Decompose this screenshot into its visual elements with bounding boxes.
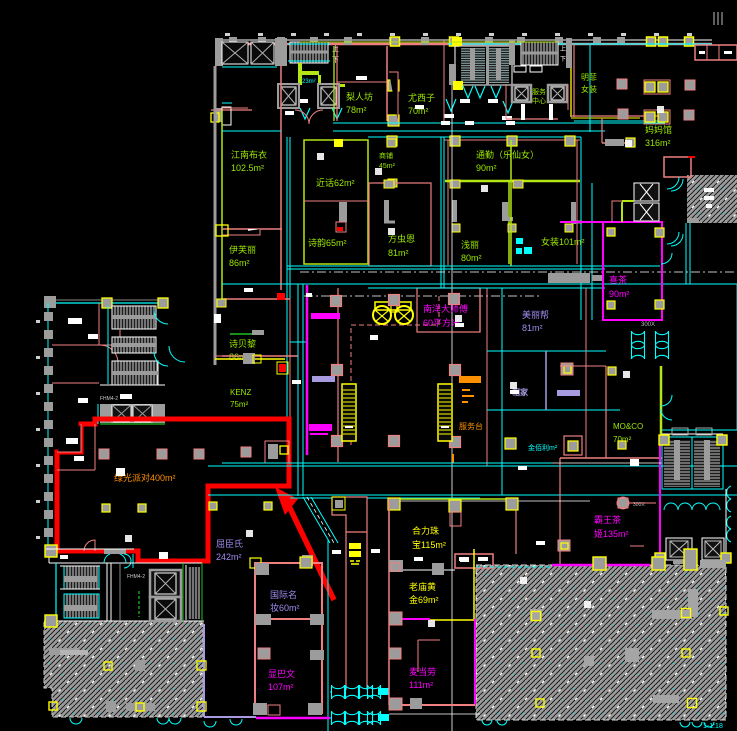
svg-text:合力珠: 合力珠 <box>412 525 439 536</box>
svg-text:国际名: 国际名 <box>270 589 297 600</box>
svg-text:78m²: 78m² <box>346 105 367 115</box>
svg-text:下: 下 <box>560 56 566 63</box>
svg-text:麦当劳: 麦当劳 <box>409 666 436 677</box>
svg-text:通勤（乐仙女）: 通勤（乐仙女） <box>476 149 539 160</box>
svg-text:金69m²: 金69m² <box>409 594 439 605</box>
svg-text:1-1:18: 1-1:18 <box>703 723 723 730</box>
svg-text:FHM4-2: FHM4-2 <box>100 396 118 402</box>
svg-text:MO&CO: MO&CO <box>613 422 643 431</box>
svg-text:90m²: 90m² <box>609 289 630 299</box>
svg-text:300X: 300X <box>641 322 655 328</box>
svg-text:23m²: 23m² <box>302 79 316 85</box>
svg-text:浅丽: 浅丽 <box>461 239 479 250</box>
svg-text:316m²: 316m² <box>645 138 671 148</box>
svg-text:喜茶: 喜茶 <box>609 274 627 285</box>
svg-text:80m²: 80m² <box>461 253 482 263</box>
svg-text:诗韵65m²: 诗韵65m² <box>308 237 347 248</box>
svg-text:86m²: 86m² <box>229 258 250 268</box>
svg-text:妆60m²: 妆60m² <box>270 602 300 613</box>
svg-text:金佰利m²: 金佰利m² <box>528 443 558 452</box>
svg-text:明菲: 明菲 <box>581 72 597 82</box>
svg-text:服务: 服务 <box>532 87 546 96</box>
svg-text:南洋大师傅: 南洋大师傅 <box>423 303 468 314</box>
svg-text:近话62m²: 近话62m² <box>316 177 355 188</box>
svg-text:服务台: 服务台 <box>459 421 483 431</box>
svg-text:75m²: 75m² <box>230 400 249 409</box>
svg-text:美丽帮: 美丽帮 <box>522 309 549 320</box>
svg-text:上: 上 <box>332 44 339 53</box>
svg-text:中心: 中心 <box>532 96 546 105</box>
svg-text:60平方米: 60平方米 <box>423 317 460 328</box>
svg-text:81m²: 81m² <box>522 323 543 333</box>
svg-text:江南布衣: 江南布衣 <box>231 149 267 160</box>
svg-text:242m²: 242m² <box>216 552 242 562</box>
svg-text:姬135m²: 姬135m² <box>594 528 629 539</box>
svg-text:显巴文: 显巴文 <box>268 668 295 679</box>
svg-text:诗贝黎: 诗贝黎 <box>229 338 256 349</box>
svg-text:90m²: 90m² <box>476 163 497 173</box>
svg-text:女装101m²: 女装101m² <box>541 236 585 247</box>
svg-text:女装: 女装 <box>581 84 597 94</box>
svg-text:妈妈馆: 妈妈馆 <box>645 124 672 135</box>
svg-text:102.5m²: 102.5m² <box>231 163 264 173</box>
svg-text:FHM4-2: FHM4-2 <box>127 574 145 580</box>
svg-text:107m²: 107m² <box>268 682 294 692</box>
svg-text:霸王茶: 霸王茶 <box>594 514 621 525</box>
svg-text:商铺: 商铺 <box>379 151 393 160</box>
svg-text:KENZ: KENZ <box>230 388 251 397</box>
svg-text:梨人坊: 梨人坊 <box>346 91 373 102</box>
svg-text:伊芙丽: 伊芙丽 <box>229 244 256 255</box>
svg-text:下: 下 <box>332 56 339 64</box>
svg-text:老庙黄: 老庙黄 <box>409 581 436 592</box>
svg-text:尤西子: 尤西子 <box>408 92 435 103</box>
svg-text:上: 上 <box>560 45 566 53</box>
svg-text:111m²: 111m² <box>409 680 433 690</box>
svg-text:81m²: 81m² <box>388 248 409 258</box>
svg-text:屈臣氏: 屈臣氏 <box>216 539 243 549</box>
svg-text:宝115m²: 宝115m² <box>412 539 446 550</box>
